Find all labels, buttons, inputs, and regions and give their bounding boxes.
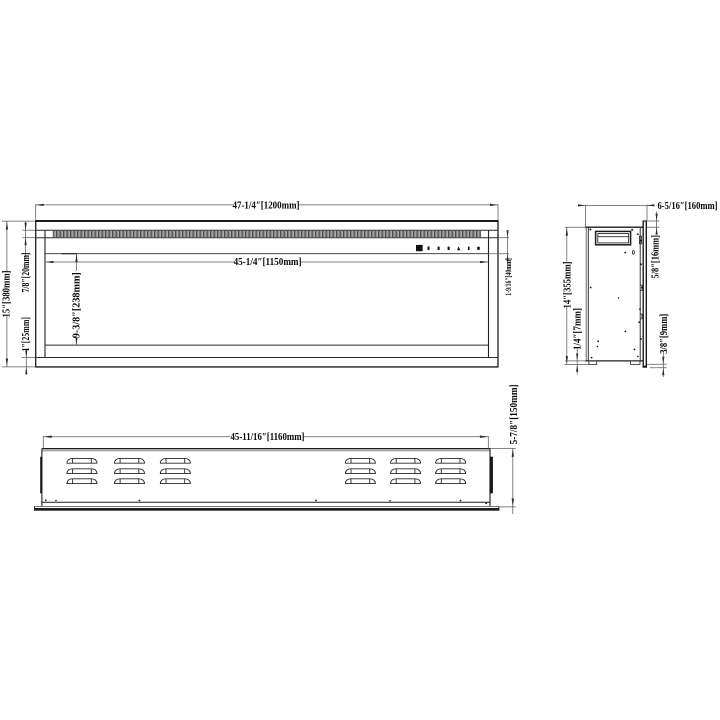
svg-text:14″[355mm]: 14″[355mm] — [562, 262, 573, 309]
svg-text:7/8″[20mm]: 7/8″[20mm] — [21, 253, 32, 293]
svg-text:45-1/4″[1150mm]: 45-1/4″[1150mm] — [234, 257, 302, 268]
svg-text:3/8″[9mm]: 3/8″[9mm] — [659, 314, 670, 354]
svg-text:15″[380mm]: 15″[380mm] — [2, 271, 13, 318]
svg-text:1/4″[7mm]: 1/4″[7mm] — [573, 308, 584, 350]
svg-text:9-3/8″[238mm]: 9-3/8″[238mm] — [71, 272, 82, 338]
svg-text:5/8″[16mm]: 5/8″[16mm] — [651, 235, 662, 279]
svg-text:45-11/16″[1160mm]: 45-11/16″[1160mm] — [231, 432, 305, 443]
svg-text:1-9/16″[40mm]: 1-9/16″[40mm] — [504, 258, 513, 296]
svg-text:6-5/16″[160mm]: 6-5/16″[160mm] — [658, 201, 718, 212]
svg-text:47-1/4″[1200mm]: 47-1/4″[1200mm] — [233, 200, 300, 211]
svg-text:1″[25mm]: 1″[25mm] — [21, 317, 32, 352]
svg-text:5-7/8″[150mm]: 5-7/8″[150mm] — [509, 384, 520, 444]
